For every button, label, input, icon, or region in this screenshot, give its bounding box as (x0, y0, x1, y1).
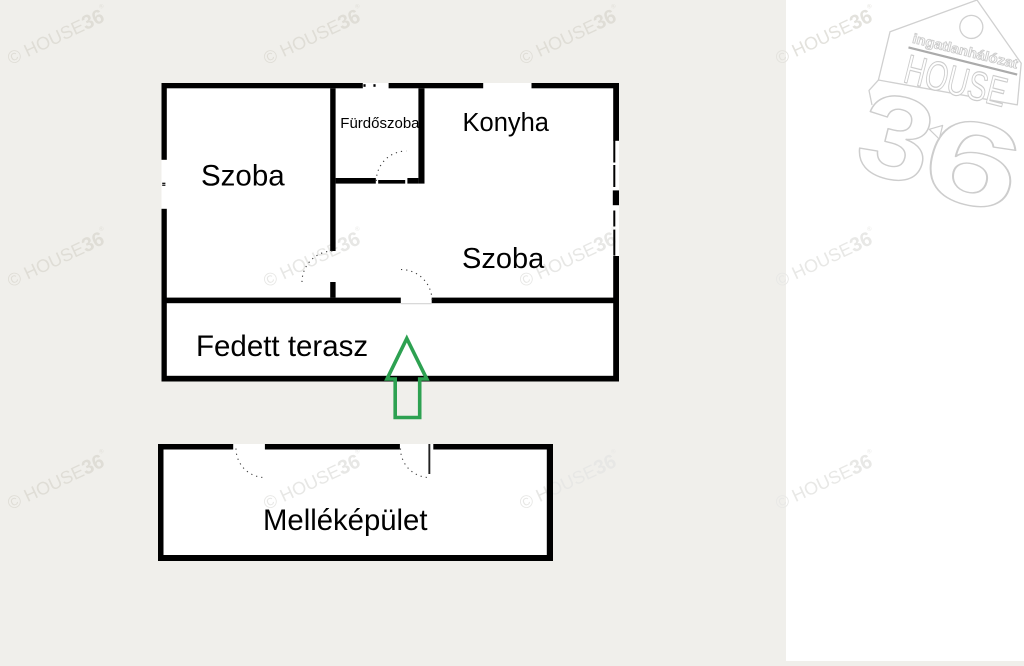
svg-text:Melléképület: Melléképület (263, 504, 427, 537)
svg-text:Konyha: Konyha (463, 109, 550, 137)
svg-text:Fürdőszoba: Fürdőszoba (340, 115, 420, 132)
svg-text:Szoba: Szoba (201, 160, 285, 193)
svg-text:Szoba: Szoba (462, 243, 545, 275)
svg-text:Fedett terasz: Fedett terasz (196, 330, 368, 363)
